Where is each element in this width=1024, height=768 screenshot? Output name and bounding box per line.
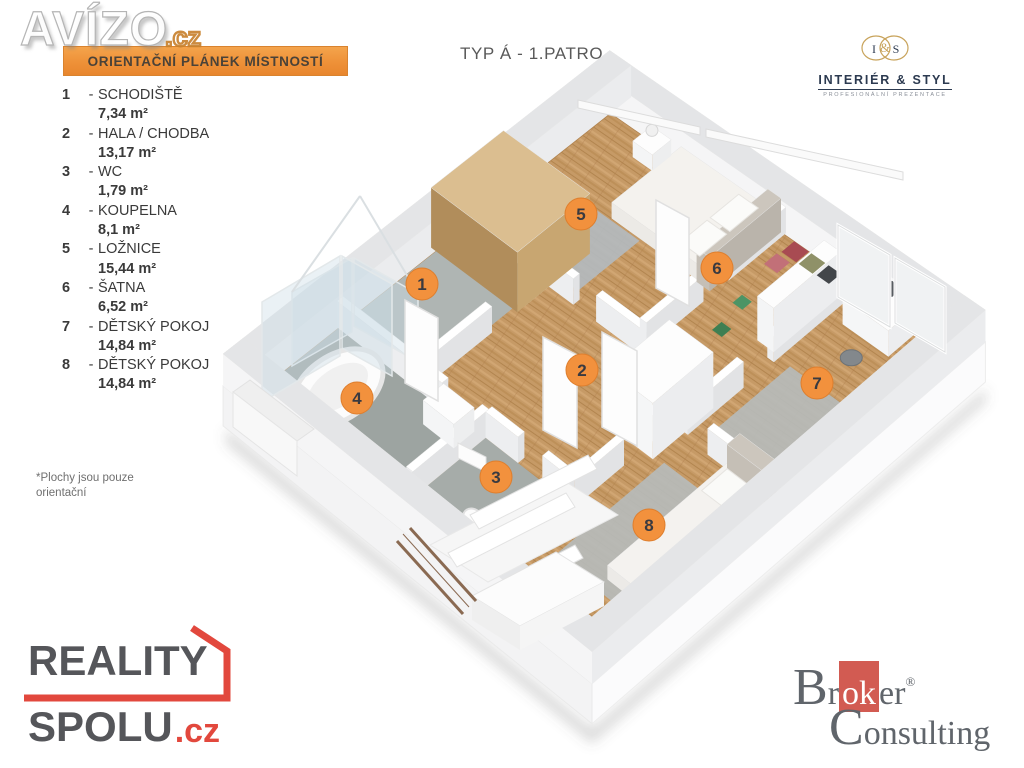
room-area: 14,84 m² — [98, 337, 209, 356]
room-number: 3 — [62, 163, 84, 182]
banner-label: ORIENTAČNÍ PLÁNEK MÍSTNOSTÍ — [88, 54, 324, 69]
banner: ORIENTAČNÍ PLÁNEK MÍSTNOSTÍ — [63, 46, 348, 76]
room-area: 15,44 m² — [98, 260, 209, 279]
room-label: WC — [98, 163, 209, 182]
legend-item-1: 1-SCHODIŠTĚ 7,34 m² — [62, 86, 209, 125]
svg-text:&: & — [880, 40, 890, 55]
room-area: 7,34 m² — [98, 105, 209, 124]
room-marker-5: 5 — [565, 198, 597, 230]
room-label: HALA / CHODBA — [98, 125, 209, 144]
registered-mark: ® — [905, 674, 915, 689]
svg-text:S: S — [893, 42, 900, 56]
room-marker-3: 3 — [480, 461, 512, 493]
room-number: 6 — [62, 279, 84, 298]
room-label: ŠATNA — [98, 279, 209, 298]
reality-spolu-tld: .cz — [175, 714, 220, 748]
room-marker-8: 8 — [633, 509, 665, 541]
room-marker-number: 1 — [417, 275, 426, 294]
room-area: 1,79 m² — [98, 182, 209, 201]
broker-consulting-logo: Broker® Consulting — [793, 662, 1024, 754]
room-marker-number: 5 — [576, 205, 585, 224]
room-marker-number: 8 — [644, 516, 653, 535]
svg-text:I: I — [872, 42, 876, 56]
room-number: 8 — [62, 356, 84, 375]
legend-item-8: 8-DĚTSKÝ POKOJ 14,84 m² — [62, 356, 209, 395]
footnote-line2: orientační — [36, 486, 134, 501]
interier-styl-tagline: PROFESIONÁLNÍ PREZENTACE — [812, 92, 958, 98]
floorplan-page: 12345678 ORIENTAČNÍ PLÁNEK MÍSTNOSTÍ AVÍ… — [0, 0, 1024, 768]
legend-item-5: 5-LOŽNICE 15,44 m² — [62, 240, 209, 279]
footnote-line1: *Plochy jsou pouze — [36, 471, 134, 486]
interier-styl-monogram-icon: I & S — [850, 30, 920, 66]
room-marker-number: 4 — [352, 389, 362, 408]
broker-word-consulting: Consulting — [829, 702, 990, 754]
room-label: DĚTSKÝ POKOJ — [98, 318, 209, 337]
legend-item-2: 2-HALA / CHODBA 13,17 m² — [62, 125, 209, 164]
room-label: KOUPELNA — [98, 202, 209, 221]
room-number: 1 — [62, 86, 84, 105]
room-marker-number: 2 — [577, 361, 586, 380]
plan-title: TYP Á - 1.PATRO — [460, 44, 603, 64]
reality-spolu-logo: REALITY SPOLU .cz — [22, 620, 262, 765]
room-marker-6: 6 — [701, 252, 733, 284]
room-marker-number: 6 — [712, 259, 721, 278]
room-area: 6,52 m² — [98, 298, 209, 317]
reality-spolu-word1: REALITY — [28, 640, 208, 682]
room-area: 14,84 m² — [98, 375, 209, 394]
legend-item-6: 6-ŠATNA 6,52 m² — [62, 279, 209, 318]
room-marker-number: 3 — [491, 468, 500, 487]
room-label: SCHODIŠTĚ — [98, 86, 209, 105]
room-marker-2: 2 — [566, 354, 598, 386]
legend-item-4: 4-KOUPELNA 8,1 m² — [62, 202, 209, 241]
room-area: 8,1 m² — [98, 221, 209, 240]
interier-styl-name: INTERIÉR & STYL — [818, 73, 951, 90]
room-marker-1: 1 — [406, 268, 438, 300]
room-number: 4 — [62, 202, 84, 221]
room-marker-4: 4 — [341, 382, 373, 414]
footnote: *Plochy jsou pouze orientační — [36, 471, 134, 501]
room-number: 5 — [62, 240, 84, 259]
room-marker-7: 7 — [801, 367, 833, 399]
room-area: 13,17 m² — [98, 144, 209, 163]
room-marker-number: 7 — [812, 374, 821, 393]
room-label: DĚTSKÝ POKOJ — [98, 356, 209, 375]
room-label: LOŽNICE — [98, 240, 209, 259]
room-number: 2 — [62, 125, 84, 144]
legend-item-3: 3-WC 1,79 m² — [62, 163, 209, 202]
interier-styl-logo: I & S INTERIÉR & STYL PROFESIONÁLNÍ PREZ… — [812, 30, 958, 98]
room-legend: 1-SCHODIŠTĚ 7,34 m² 2-HALA / CHODBA 13,1… — [62, 86, 209, 395]
room-number: 7 — [62, 318, 84, 337]
reality-spolu-word2: SPOLU — [28, 706, 173, 748]
legend-item-7: 7-DĚTSKÝ POKOJ 14,84 m² — [62, 318, 209, 357]
